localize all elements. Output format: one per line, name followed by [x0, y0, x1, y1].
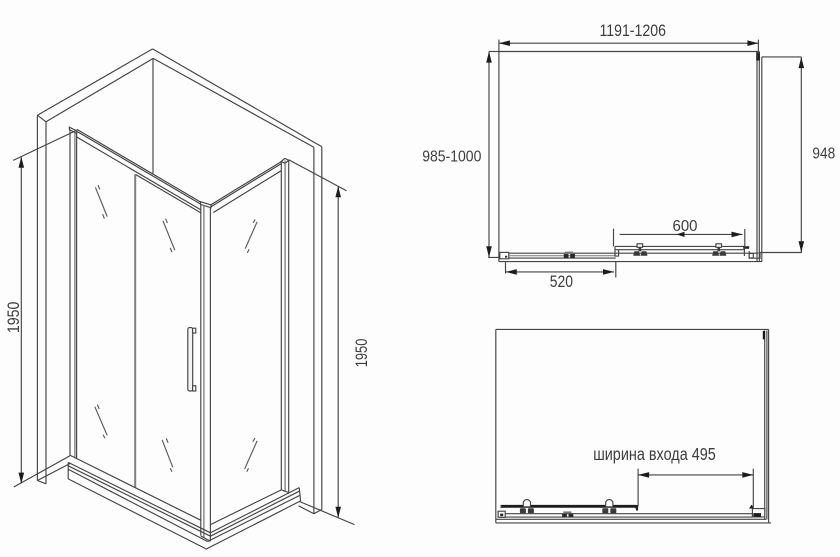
- svg-text:600: 600: [673, 218, 698, 235]
- svg-text:1950: 1950: [352, 339, 371, 368]
- svg-text:948: 948: [812, 145, 835, 162]
- svg-text:520: 520: [550, 273, 573, 291]
- svg-text:1950: 1950: [4, 302, 23, 334]
- svg-text:985-1000: 985-1000: [422, 149, 481, 166]
- svg-text:1191-1206: 1191-1206: [599, 21, 666, 40]
- svg-text:ширина входа 495: ширина входа 495: [593, 444, 716, 464]
